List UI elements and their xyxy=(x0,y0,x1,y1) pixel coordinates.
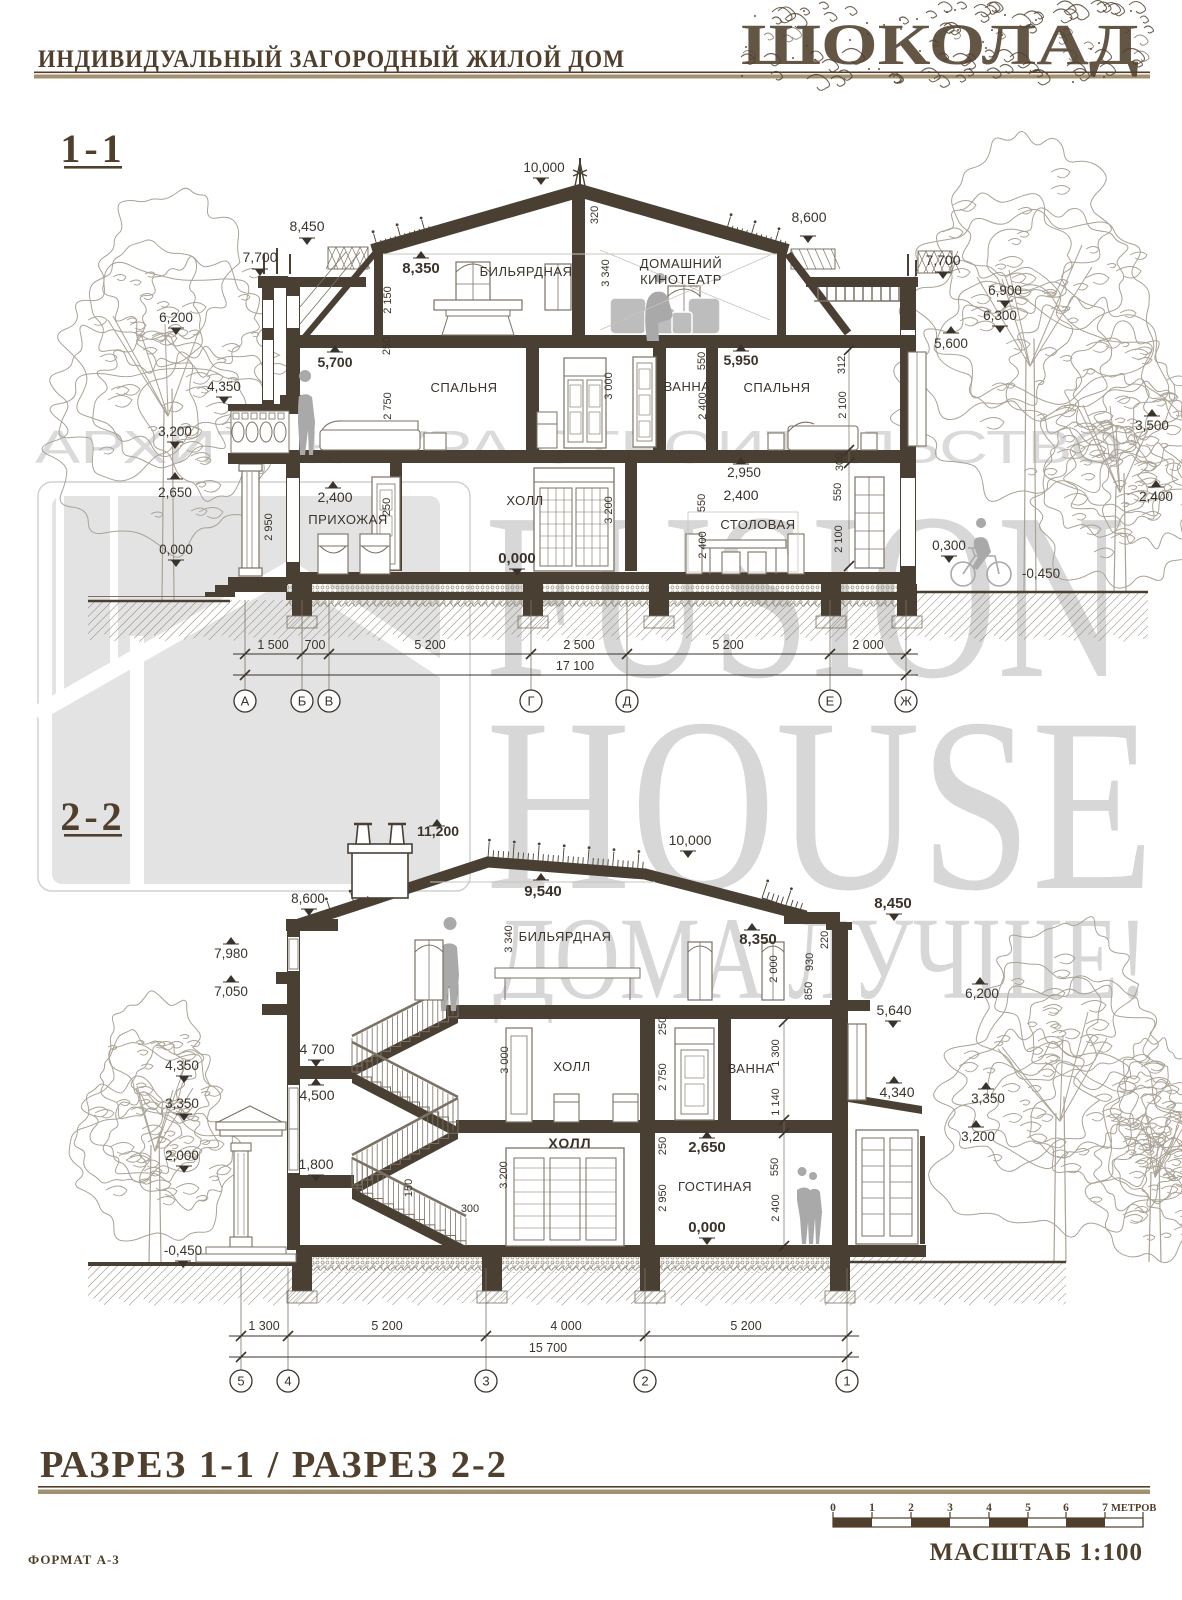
svg-text:5: 5 xyxy=(237,1374,244,1389)
svg-text:17 100: 17 100 xyxy=(556,659,594,673)
svg-text:ВАННА: ВАННА xyxy=(664,379,711,394)
svg-text:4,340: 4,340 xyxy=(879,1084,914,1100)
svg-text:6,300: 6,300 xyxy=(983,308,1017,323)
svg-text:2 950: 2 950 xyxy=(657,1184,669,1212)
svg-text:БИЛЬЯРДНАЯ: БИЛЬЯРДНАЯ xyxy=(480,264,573,279)
svg-text:5: 5 xyxy=(1025,1502,1031,1514)
svg-text:2,400: 2,400 xyxy=(723,487,758,503)
svg-text:1-1: 1-1 xyxy=(60,126,125,171)
svg-text:3: 3 xyxy=(947,1502,953,1514)
svg-text:5,600: 5,600 xyxy=(934,336,968,351)
svg-text:15 700: 15 700 xyxy=(529,1341,567,1355)
svg-text:5,950: 5,950 xyxy=(723,352,758,368)
svg-text:3 000: 3 000 xyxy=(499,1046,511,1074)
svg-text:1 140: 1 140 xyxy=(770,1088,782,1116)
svg-text:БИЛЬЯРДНАЯ: БИЛЬЯРДНАЯ xyxy=(519,929,612,944)
svg-text:3,350: 3,350 xyxy=(165,1096,199,1111)
svg-text:8,350: 8,350 xyxy=(739,931,777,948)
svg-text:Б: Б xyxy=(298,694,307,709)
svg-text:3 340: 3 340 xyxy=(600,259,612,287)
svg-text:В: В xyxy=(325,694,334,709)
svg-text:ХОЛЛ: ХОЛЛ xyxy=(553,1059,590,1074)
svg-text:2 750: 2 750 xyxy=(382,392,394,420)
svg-text:2: 2 xyxy=(908,1502,914,1514)
svg-text:МЕТРОВ: МЕТРОВ xyxy=(1111,1503,1156,1514)
svg-text:4,500: 4,500 xyxy=(299,1087,334,1103)
svg-text:5,700: 5,700 xyxy=(317,354,352,370)
svg-text:Д: Д xyxy=(623,694,632,709)
svg-text:3 340: 3 340 xyxy=(503,925,515,953)
svg-text:ШОКОЛАД: ШОКОЛАД xyxy=(741,12,1139,77)
svg-text:2 400: 2 400 xyxy=(770,1194,782,1222)
svg-text:3: 3 xyxy=(482,1374,489,1389)
svg-text:-0,450: -0,450 xyxy=(1022,566,1060,581)
svg-text:312: 312 xyxy=(836,356,848,374)
svg-text:4,350: 4,350 xyxy=(207,379,241,394)
svg-text:2 750: 2 750 xyxy=(657,1063,669,1091)
svg-text:7,980: 7,980 xyxy=(214,946,248,961)
svg-text:3,500: 3,500 xyxy=(1135,418,1169,433)
svg-text:ГОСТИНАЯ: ГОСТИНАЯ xyxy=(678,1179,752,1194)
svg-text:1: 1 xyxy=(869,1502,875,1514)
svg-text:Г: Г xyxy=(527,694,534,709)
svg-text:1,800: 1,800 xyxy=(298,1156,333,1172)
svg-text:4: 4 xyxy=(986,1502,992,1514)
svg-text:10,000: 10,000 xyxy=(669,832,712,848)
svg-text:8,450: 8,450 xyxy=(289,218,324,234)
svg-text:7: 7 xyxy=(1102,1502,1108,1514)
svg-text:5,640: 5,640 xyxy=(876,1002,911,1018)
svg-text:4: 4 xyxy=(284,1374,291,1389)
svg-text:1 300: 1 300 xyxy=(248,1319,279,1333)
svg-text:ВАННА: ВАННА xyxy=(728,1061,775,1076)
svg-text:Ж: Ж xyxy=(900,694,912,709)
svg-text:КИНОТЕАТР: КИНОТЕАТР xyxy=(640,272,722,287)
svg-text:2-2: 2-2 xyxy=(60,794,125,839)
svg-text:3,200: 3,200 xyxy=(158,424,192,439)
svg-text:8,350: 8,350 xyxy=(402,260,440,277)
svg-text:ИНДИВИДУАЛЬНЫЙ ЗАГОРОДНЫЙ ЖИЛО: ИНДИВИДУАЛЬНЫЙ ЗАГОРОДНЫЙ ЖИЛОЙ ДОМ xyxy=(38,45,625,73)
svg-text:2 400: 2 400 xyxy=(697,392,709,420)
svg-text:550: 550 xyxy=(832,483,844,501)
svg-text:0,000: 0,000 xyxy=(159,542,193,557)
svg-text:6: 6 xyxy=(1063,1502,1069,1514)
svg-text:10,000: 10,000 xyxy=(523,160,564,175)
svg-text:2,400: 2,400 xyxy=(1139,489,1173,504)
svg-text:2 500: 2 500 xyxy=(563,638,594,652)
svg-text:ХОЛЛ: ХОЛЛ xyxy=(548,1135,591,1151)
svg-text:5 200: 5 200 xyxy=(730,1319,761,1333)
svg-text:7,050: 7,050 xyxy=(214,984,248,999)
svg-text:8,600: 8,600 xyxy=(291,891,325,906)
svg-text:ДОМАШНИЙ: ДОМАШНИЙ xyxy=(640,256,722,271)
svg-text:2 000: 2 000 xyxy=(852,638,883,652)
svg-text:3,350: 3,350 xyxy=(971,1091,1005,1106)
svg-text:550: 550 xyxy=(696,352,708,370)
svg-text:2 400: 2 400 xyxy=(697,531,709,559)
svg-text:РАЗРЕЗ 1-1 / РАЗРЕЗ 2-2: РАЗРЕЗ 1-1 / РАЗРЕЗ 2-2 xyxy=(40,1444,508,1486)
svg-text:2,650: 2,650 xyxy=(688,1139,726,1156)
svg-text:2 000: 2 000 xyxy=(768,955,780,983)
svg-text:5 200: 5 200 xyxy=(712,638,743,652)
svg-text:250: 250 xyxy=(657,1137,669,1155)
svg-text:220: 220 xyxy=(819,931,831,949)
svg-text:5 200: 5 200 xyxy=(414,638,445,652)
svg-text:2,400: 2,400 xyxy=(317,489,352,505)
svg-text:0: 0 xyxy=(830,1502,836,1514)
svg-text:250: 250 xyxy=(381,337,393,355)
svg-text:ХОЛЛ: ХОЛЛ xyxy=(506,493,543,508)
svg-text:4,350: 4,350 xyxy=(165,1058,199,1073)
svg-text:ФОРМАТ А-3: ФОРМАТ А-3 xyxy=(28,1552,120,1567)
svg-text:2,650: 2,650 xyxy=(158,485,192,500)
svg-text:0,000: 0,000 xyxy=(498,550,536,567)
svg-text:550: 550 xyxy=(696,494,708,512)
svg-text:2 950: 2 950 xyxy=(263,513,275,541)
svg-text:320: 320 xyxy=(589,206,601,224)
svg-text:3 200: 3 200 xyxy=(498,1161,510,1189)
svg-text:Е: Е xyxy=(826,694,835,709)
svg-text:А: А xyxy=(241,694,250,709)
svg-text:7,700: 7,700 xyxy=(925,252,960,268)
svg-text:7,700: 7,700 xyxy=(242,249,277,265)
svg-text:СТОЛОВАЯ: СТОЛОВАЯ xyxy=(720,517,795,532)
svg-text:1: 1 xyxy=(843,1374,850,1389)
svg-text:6,200: 6,200 xyxy=(159,310,193,325)
svg-text:МАСШТАБ 1:100: МАСШТАБ 1:100 xyxy=(929,1539,1143,1566)
svg-text:9,540: 9,540 xyxy=(524,883,562,900)
svg-text:ПРИХОЖАЯ: ПРИХОЖАЯ xyxy=(308,512,388,527)
svg-text:4 700: 4 700 xyxy=(299,1041,334,1057)
svg-text:0,000: 0,000 xyxy=(688,1219,726,1236)
svg-text:1 500: 1 500 xyxy=(257,638,288,652)
svg-text:8,450: 8,450 xyxy=(874,895,912,912)
svg-text:6,200: 6,200 xyxy=(965,986,999,1001)
svg-text:550: 550 xyxy=(769,1158,781,1176)
svg-text:3,200: 3,200 xyxy=(961,1129,995,1144)
svg-text:300: 300 xyxy=(461,1203,479,1215)
svg-text:2,950: 2,950 xyxy=(727,465,761,480)
svg-text:СПАЛЬНЯ: СПАЛЬНЯ xyxy=(430,380,497,395)
svg-text:3 000: 3 000 xyxy=(603,372,615,400)
svg-text:3 200: 3 200 xyxy=(603,496,615,524)
svg-text:700: 700 xyxy=(305,638,326,652)
svg-text:150: 150 xyxy=(403,1179,415,1197)
svg-text:2 100: 2 100 xyxy=(833,525,845,553)
svg-text:2,000: 2,000 xyxy=(165,1148,199,1163)
svg-text:300: 300 xyxy=(834,453,846,471)
svg-text:6,900: 6,900 xyxy=(988,283,1022,298)
svg-text:2 150: 2 150 xyxy=(382,286,394,314)
svg-text:850: 850 xyxy=(803,982,815,1000)
svg-text:2 100: 2 100 xyxy=(837,391,849,419)
svg-text:-0,450: -0,450 xyxy=(164,1243,202,1258)
svg-text:4 000: 4 000 xyxy=(550,1319,581,1333)
svg-text:5 200: 5 200 xyxy=(371,1319,402,1333)
svg-text:930: 930 xyxy=(804,953,816,971)
svg-text:250: 250 xyxy=(657,1017,669,1035)
svg-text:2: 2 xyxy=(641,1374,648,1389)
svg-text:СПАЛЬНЯ: СПАЛЬНЯ xyxy=(743,380,810,395)
svg-text:8,600: 8,600 xyxy=(791,209,826,225)
svg-text:0,300: 0,300 xyxy=(932,538,966,553)
